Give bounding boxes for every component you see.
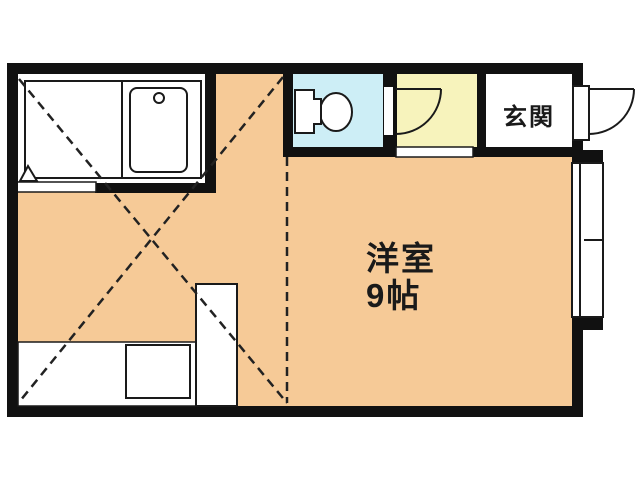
floor-plan: 玄関 洋室 9帖: [0, 0, 640, 480]
kitchen-opening: [17, 182, 96, 192]
entrance-label: 玄関: [486, 97, 572, 132]
bathroom-floor: [397, 74, 477, 147]
toilet-door-opening: [384, 87, 393, 135]
wall-left: [7, 63, 18, 417]
wall-top: [7, 63, 583, 74]
room-name-label: 洋室: [366, 240, 436, 277]
faucet-icon: [154, 93, 164, 103]
wall-right-upper: [572, 63, 583, 87]
front-door-swing-arc: [589, 89, 634, 134]
entrance-left-wall: [477, 74, 486, 157]
window-top-cap: [572, 150, 603, 163]
wall-bottom: [7, 406, 583, 417]
bathroom-opening: [396, 147, 473, 157]
toilet-left-wall: [283, 74, 293, 157]
kitchen-bottom-wall: [95, 183, 216, 193]
floor-plan-drawing: [0, 0, 640, 480]
room-size-label: 9帖: [366, 277, 436, 314]
front-door-leaf: [573, 86, 589, 140]
appliance-space: [126, 345, 190, 398]
room-label: 洋室 9帖: [366, 240, 436, 314]
wall-right-lower: [572, 328, 583, 417]
kitchen-right-wall: [205, 74, 216, 193]
toilet-bowl-icon: [320, 93, 352, 131]
